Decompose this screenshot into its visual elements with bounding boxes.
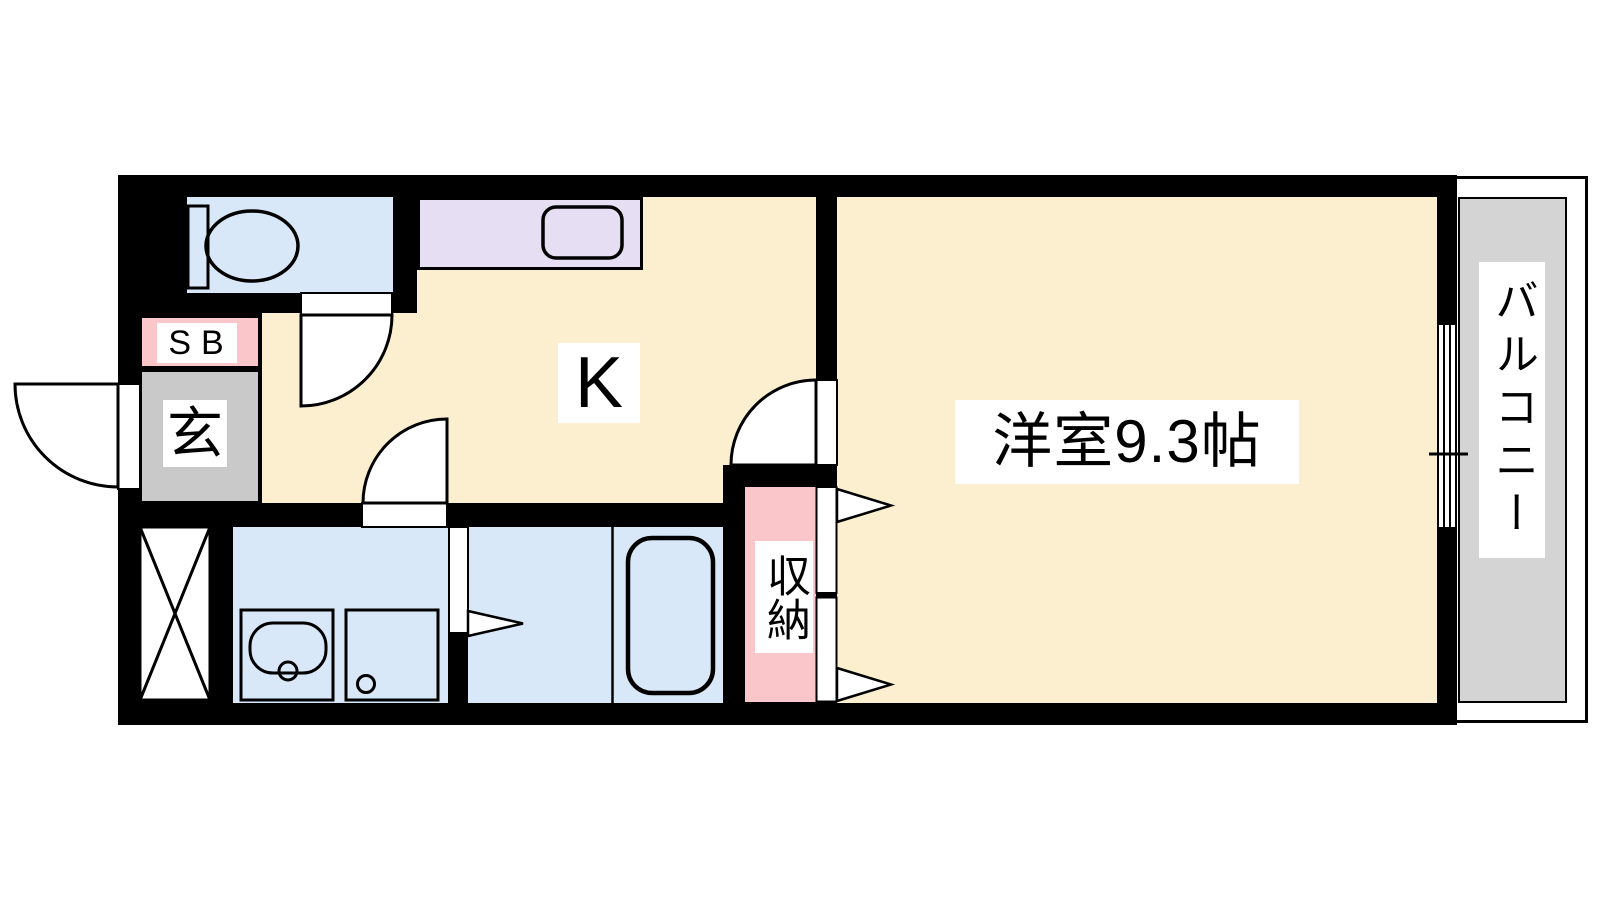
entrance-label: 玄 <box>163 400 227 467</box>
toilet-room <box>187 197 393 293</box>
entrance-door-swing-arc <box>15 384 118 487</box>
kitchen-floor-mid <box>262 313 816 465</box>
kitchen-label: K <box>558 343 640 423</box>
washroom <box>233 527 448 703</box>
balcony-label: バルコニー <box>1479 262 1545 558</box>
page: { "plan": { "type": "apartment-floor-pla… <box>0 0 1600 900</box>
bathroom <box>468 527 723 703</box>
western-room-label: 洋室9.3帖 <box>955 400 1299 484</box>
kitchen-counter <box>417 197 643 270</box>
storage-label: 収納 <box>755 541 813 653</box>
kitchen-floor-low <box>262 465 723 503</box>
shoe-box-label: SB <box>157 323 237 363</box>
floor-plan: SB 玄 K 洋室9.3帖 収納 バルコニー <box>0 0 1600 900</box>
